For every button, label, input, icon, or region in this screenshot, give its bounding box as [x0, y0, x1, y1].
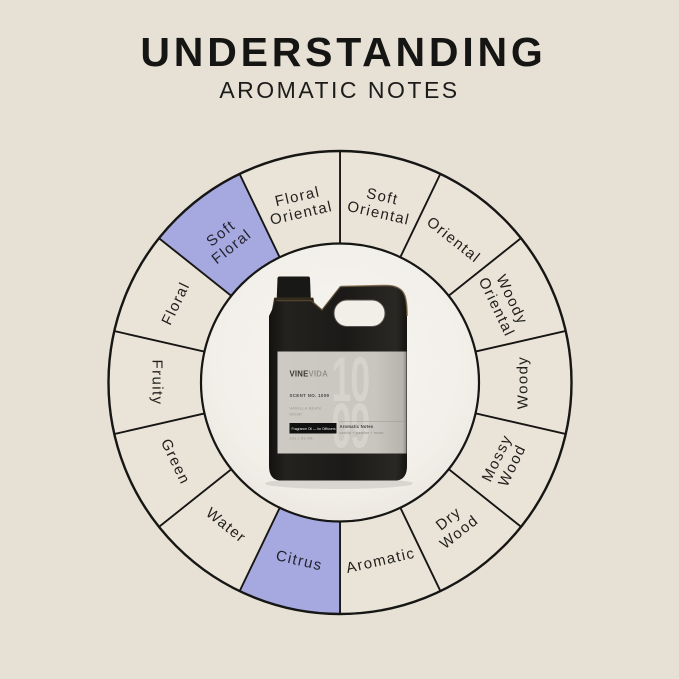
- svg-text:Woody: Woody: [514, 356, 531, 409]
- svg-text:VANILLA BEAN: VANILLA BEAN: [290, 406, 322, 411]
- svg-text:Fragrance Oil — for Diffusers: Fragrance Oil — for Diffusers: [292, 427, 336, 431]
- svg-text:VINEVIDA: VINEVIDA: [290, 370, 329, 379]
- svg-text:Fruity: Fruity: [149, 360, 166, 406]
- svg-text:Aromatic Notes: Aromatic Notes: [340, 424, 374, 429]
- svg-text:vanilla + jasmine + musk: vanilla + jasmine + musk: [340, 431, 384, 435]
- svg-text:MUSK: MUSK: [290, 412, 303, 417]
- svg-text:SCENT NO. 1009: SCENT NO. 1009: [290, 393, 330, 398]
- svg-text:2oz | 59 ML: 2oz | 59 ML: [290, 436, 315, 441]
